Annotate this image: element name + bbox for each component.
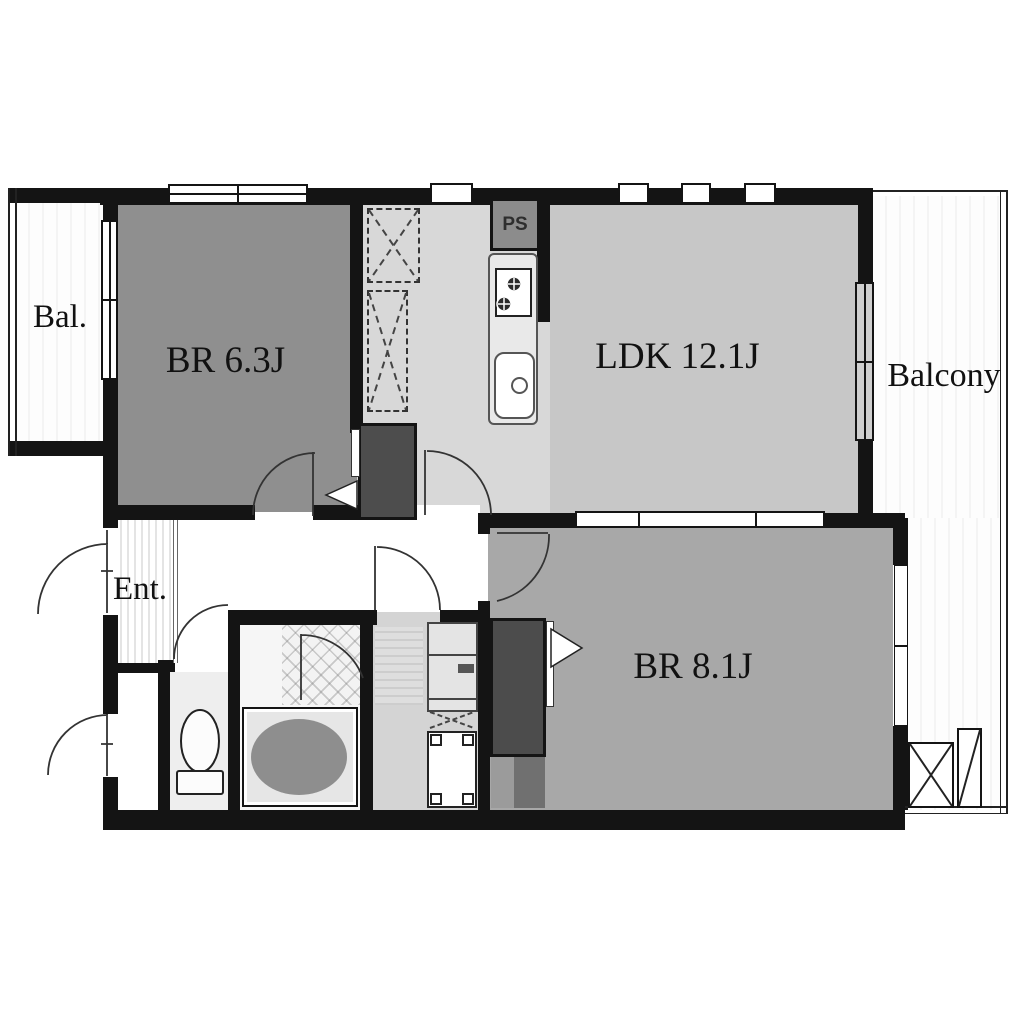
front-door-arc [38,530,113,614]
closet-door-panel [351,429,360,477]
closet [490,618,546,757]
pan-corner [430,734,442,746]
sliding-door [575,511,825,528]
room-label-entrance: Ent. [104,572,176,607]
room-label-bedroom81: BR 8.1J [588,648,798,687]
window [744,183,776,204]
ac-unit-box [908,742,954,808]
closet [358,423,417,520]
wall [478,513,490,534]
storage-room-floor [115,673,158,810]
vanity-handle [458,664,474,673]
service-door-arc [48,714,113,776]
closet-lower-shelf [514,757,545,808]
window [430,183,473,204]
wall [103,188,118,222]
window [168,184,308,204]
room-label-bedroom63: BR 6.3J [118,342,333,381]
washing-machine-pan [427,731,477,808]
closet-door-panel [546,621,554,707]
balcony-right-rail-side [1000,190,1008,814]
pipe-shaft-box: PS [490,198,540,251]
pan-corner [462,734,474,746]
hall-toilet-strip [176,610,228,662]
bathtub [242,707,358,807]
stove [495,268,532,317]
sink-drain [511,377,528,394]
pan-corner [462,793,474,805]
wall [10,188,103,203]
closet-lower-shelf [491,757,514,808]
pipe-shaft-label: PS [502,214,527,236]
wall [103,810,905,830]
floor-plan: PS [0,0,1024,1024]
room-label-ldk: LDK 12.1J [555,338,800,377]
wall [893,726,908,810]
window [894,565,908,726]
room-label-balcony-left: Bal. [14,300,106,335]
refrigerator-space-dashed [367,290,408,412]
wall [893,518,908,565]
washroom-mat [375,627,423,705]
pan-corner [430,793,442,805]
window [618,183,649,204]
balcony-partition-box [957,728,982,808]
wall [480,513,575,528]
wall [313,505,360,520]
wall [158,663,170,810]
wall [478,601,490,810]
closet-dashed [367,208,420,283]
bathroom-tile-floor [282,625,360,705]
room-label-balcony-right: Balcony [878,358,1010,394]
window [681,183,711,204]
wall [360,610,373,810]
vanity-unit [427,622,478,712]
balcony-right-rail-top [873,190,1008,196]
toilet-room-floor [170,672,228,810]
doorway-strip [417,505,480,519]
wall [858,198,873,282]
wall [228,610,240,810]
sliding-window [855,282,874,441]
wall [228,610,377,625]
wall [10,441,103,456]
wall [350,198,363,433]
wall [103,505,255,520]
